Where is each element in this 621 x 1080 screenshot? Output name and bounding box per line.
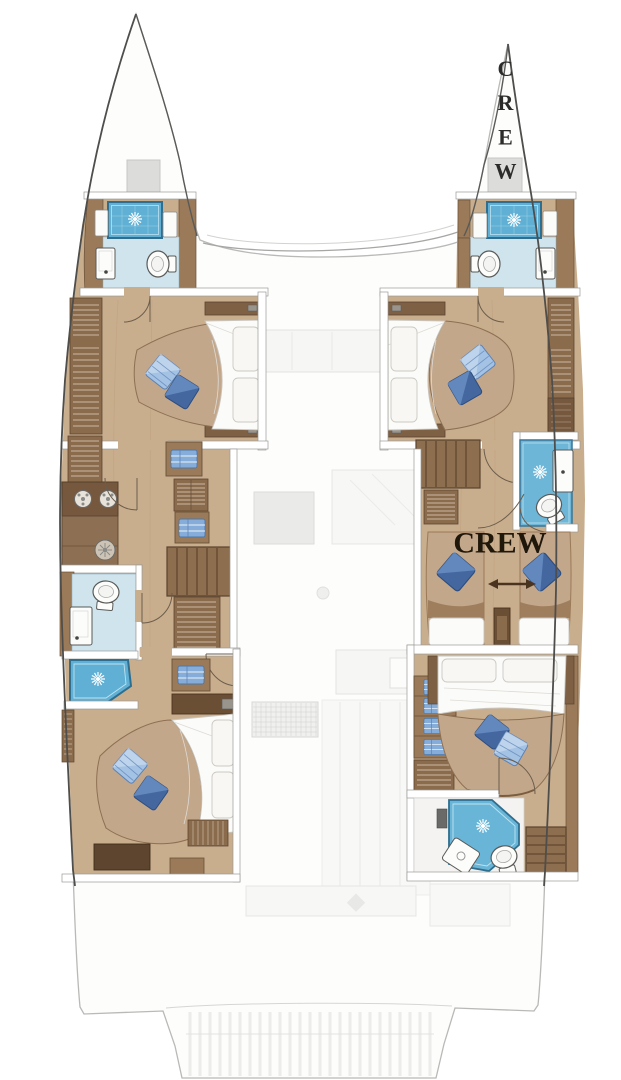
- shelf-cubby: [172, 659, 210, 691]
- wardrobe: [174, 479, 208, 511]
- wardrobe: [414, 760, 454, 792]
- folded-clothes-icon: [179, 519, 205, 537]
- folded-clothes-icon: [171, 450, 197, 468]
- coffee-table-ghost: [254, 492, 314, 544]
- stairs: [167, 547, 231, 596]
- shelf-cubby: [175, 512, 209, 543]
- wardrobe: [68, 436, 102, 482]
- shower-icon: [108, 202, 162, 238]
- shelf: [170, 858, 204, 875]
- shower-bench: [163, 212, 177, 237]
- shower-bench: [473, 213, 487, 238]
- windshield-curve: [203, 232, 458, 251]
- wardrobe: [70, 298, 102, 434]
- folded-clothes-icon: [178, 666, 204, 684]
- counter-appliances: [62, 482, 118, 516]
- wardrobe: [424, 490, 458, 524]
- crew-cabin-label: CREW: [448, 528, 552, 561]
- sink-icon: [70, 607, 92, 645]
- coachroof-curve: [207, 225, 454, 244]
- deck-hatch-icon: [95, 540, 115, 560]
- bench: [94, 844, 150, 870]
- starboard-stairs: [416, 440, 480, 488]
- console: [494, 608, 510, 648]
- catamaran-floor-plan: CREW CREW: [0, 0, 621, 1080]
- cabinet: [188, 820, 228, 846]
- double-bed: [388, 320, 514, 430]
- shower-bench: [543, 211, 557, 236]
- wardrobe: [174, 597, 220, 651]
- shelf-cubby: [166, 442, 202, 476]
- wardrobe: [548, 298, 574, 432]
- shower-bench: [95, 210, 108, 236]
- dresser: [172, 694, 238, 714]
- mast-base: [317, 587, 329, 599]
- floor-grate: [252, 702, 318, 737]
- anchor-locker-hatch-port: [127, 160, 160, 194]
- sink-icon: [96, 248, 115, 279]
- crew-bow-label: CREW: [492, 56, 524, 196]
